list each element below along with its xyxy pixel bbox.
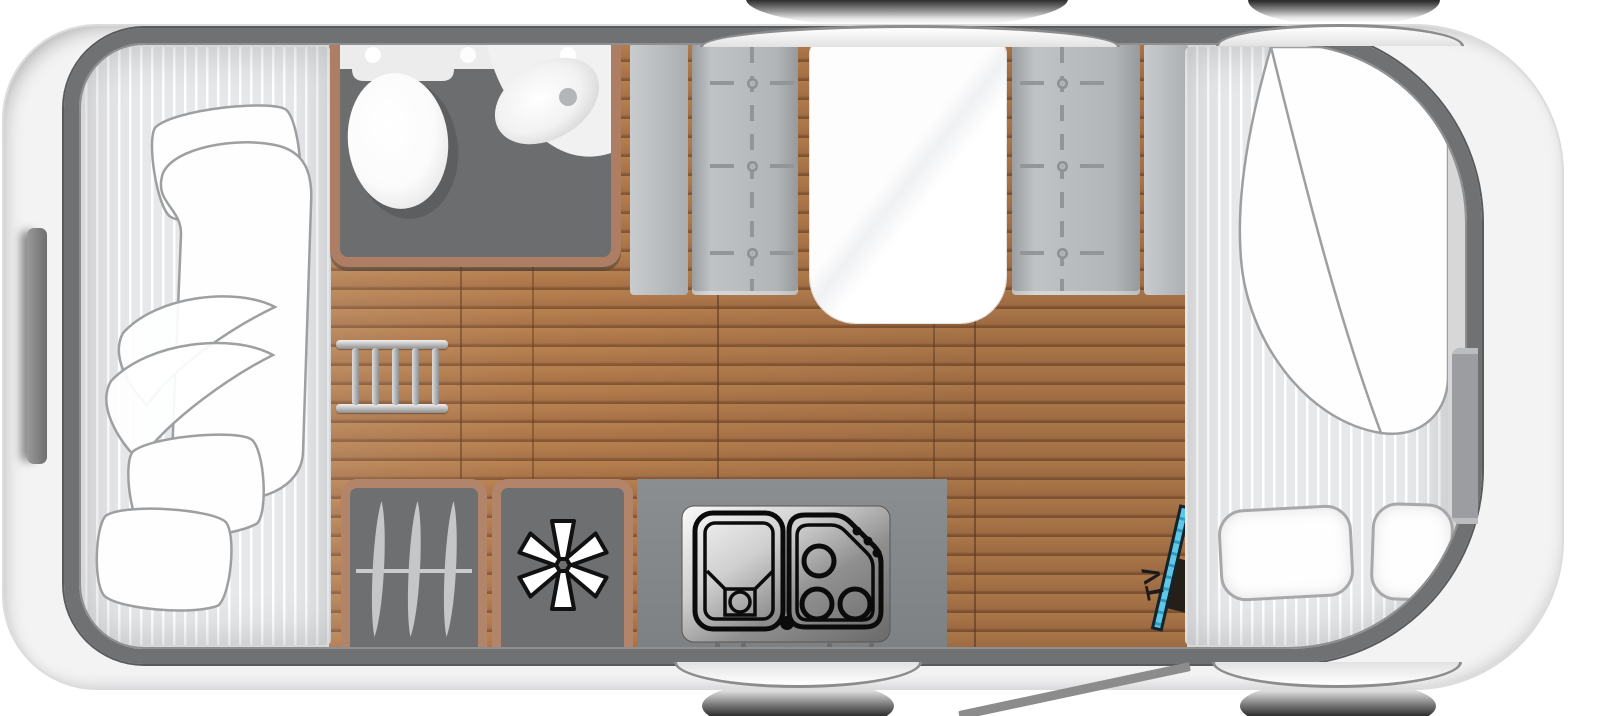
front-wall-shelf [1452,348,1478,524]
interior-wall [64,28,1482,664]
rear-bumper-bar [27,228,47,464]
wheel-tire-top-right-icon [1248,0,1440,26]
caravan-floor-plan: TV STYLE490 K [0,0,1598,716]
